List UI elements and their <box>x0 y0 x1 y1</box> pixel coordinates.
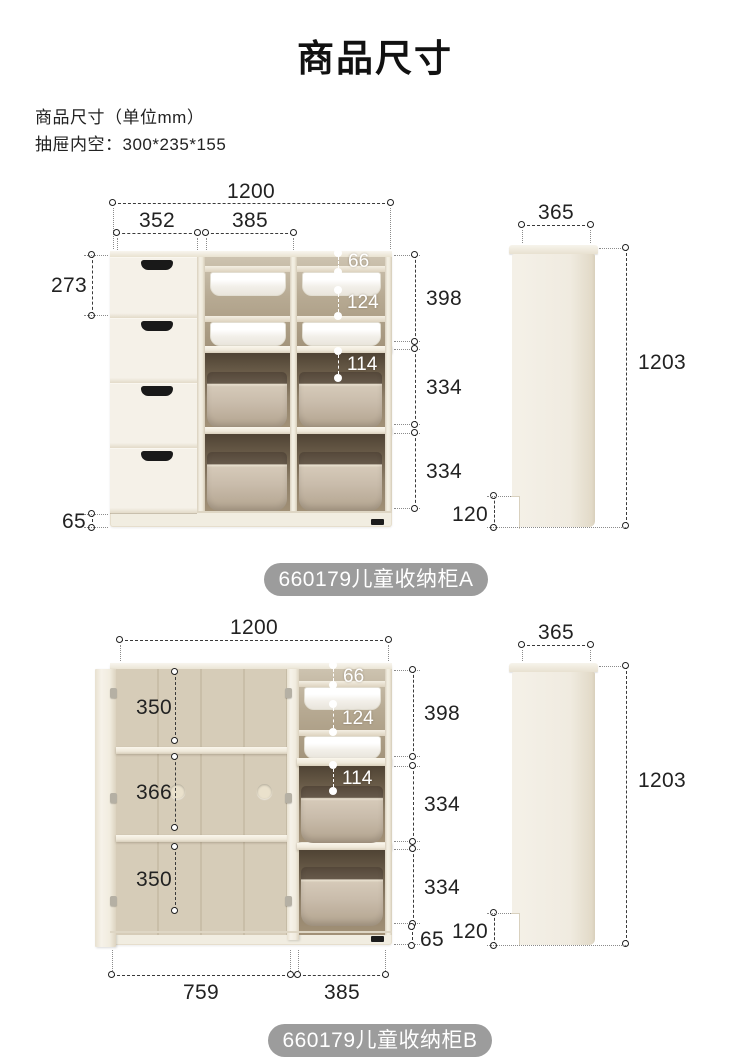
dim-line-b-total-width <box>120 640 388 641</box>
divider-panel <box>290 257 297 513</box>
door-hinge <box>110 793 117 803</box>
extension-line <box>394 944 420 945</box>
extension-line <box>84 514 108 515</box>
tan-storage-bin <box>301 867 383 926</box>
door-hinge <box>110 896 117 906</box>
dim-line-a-section-middle <box>415 349 416 424</box>
extension-line <box>487 913 511 914</box>
dim-line-b-shelf-top <box>175 672 176 740</box>
extension-line <box>117 238 118 250</box>
dim-a-section-top: 398 <box>426 288 462 309</box>
extension-line <box>84 527 108 528</box>
white-storage-bin <box>304 687 381 710</box>
dim-line-b-height <box>626 666 627 943</box>
plinth-notch <box>511 913 520 946</box>
cabinet-b-side-top-panel <box>509 663 598 672</box>
extension-line <box>197 238 198 250</box>
dim-line-a-side-plinth <box>494 496 495 527</box>
side-wall <box>385 257 392 513</box>
dim-b-section-middle: 334 <box>424 794 460 815</box>
extension-line <box>120 645 121 661</box>
dim-a-shelf-width: 385 <box>232 210 268 231</box>
dim-a-upper-bin: 124 <box>347 293 379 312</box>
dim-b-upper-bin: 124 <box>342 709 374 728</box>
anti-tip-mark <box>371 519 384 525</box>
tan-storage-bin <box>207 452 287 511</box>
shelf <box>116 835 287 842</box>
dim-line-a-drawer-height <box>92 255 93 315</box>
dim-line-b-depth <box>522 645 590 646</box>
plinth-notch <box>511 496 520 529</box>
door-hinge <box>285 793 292 803</box>
dim-b-shelf-middle: 366 <box>136 782 172 803</box>
dim-a-top-gap: 66 <box>348 252 369 271</box>
cable-hole <box>170 784 185 799</box>
tan-storage-bin <box>301 786 383 843</box>
dimension-unit-note: 商品尺寸（单位mm） <box>35 103 204 128</box>
dim-a-section-bottom: 334 <box>426 461 462 482</box>
dim-a-total-width: 1200 <box>227 181 275 202</box>
dim-b-side-plinth: 120 <box>452 921 488 942</box>
extension-line <box>487 527 626 528</box>
dim-b-total-width: 1200 <box>230 617 278 638</box>
white-storage-bin <box>210 272 286 296</box>
dim-a-drawer-height: 273 <box>51 275 87 296</box>
side-wall <box>385 669 392 935</box>
drawer-handle <box>141 451 173 461</box>
dim-b-section-bottom: 334 <box>424 877 460 898</box>
dim-b-left-width: 759 <box>183 982 219 1003</box>
extension-line <box>112 950 113 971</box>
dim-line-a-depth <box>522 225 590 226</box>
extension-line <box>394 849 420 850</box>
dim-line-a-drawer-width <box>117 233 197 234</box>
white-storage-bin <box>210 322 286 346</box>
door-hinge <box>110 688 117 698</box>
extension-line <box>590 650 591 661</box>
extension-line <box>394 766 420 767</box>
dim-b-section-top: 398 <box>424 703 460 724</box>
white-storage-bin <box>304 736 381 759</box>
dim-line-b-section-top <box>413 670 414 756</box>
extension-line <box>388 645 389 661</box>
shelf <box>297 758 392 766</box>
cabinet-b-side-view <box>512 672 595 945</box>
dim-b-shelf-top: 350 <box>136 697 172 718</box>
drawer-inner-size-note: 抽屉内空：300*235*155 <box>35 130 226 155</box>
extension-line <box>487 945 626 946</box>
dim-line-b-right-width <box>298 975 385 976</box>
drawer-handle <box>141 260 173 270</box>
extension-line <box>394 923 420 924</box>
white-storage-bin <box>302 322 381 346</box>
dim-line-a-section-bottom <box>415 433 416 508</box>
dim-line-a-total-width <box>113 203 390 204</box>
page-title: 商品尺寸 <box>0 28 750 82</box>
dim-line-a-upper-bin <box>338 294 339 312</box>
dim-b-top-gap: 66 <box>343 667 364 686</box>
tan-storage-bin <box>299 452 382 511</box>
dim-line-b-section-bottom <box>413 849 414 923</box>
dim-line-a-plinth <box>92 514 93 527</box>
dim-line-b-side-plinth <box>494 913 495 945</box>
plinth-edge <box>110 931 392 933</box>
dim-line-b-upper-bin <box>333 708 334 728</box>
dim-a-height: 1203 <box>638 352 686 373</box>
door-hinge <box>285 896 292 906</box>
dim-a-side-plinth: 120 <box>452 504 488 525</box>
shelf <box>297 843 392 850</box>
dim-b-height: 1203 <box>638 770 686 791</box>
extension-line <box>84 255 108 256</box>
extension-line <box>394 670 420 671</box>
extension-line <box>487 496 511 497</box>
dim-line-b-shelf-middle <box>175 757 176 827</box>
dim-b-right-width: 385 <box>324 982 360 1003</box>
dim-line-b-middle-gap <box>333 769 334 787</box>
tan-storage-bin <box>207 372 287 428</box>
drawer-handle <box>141 321 173 331</box>
dim-line-a-shelf-width <box>206 233 293 234</box>
dim-a-drawer-width: 352 <box>139 210 175 231</box>
door-hinge <box>285 688 292 698</box>
dim-a-depth: 365 <box>538 202 574 223</box>
dim-b-depth: 365 <box>538 622 574 643</box>
cabinet-a-side-view <box>512 254 595 527</box>
extension-line <box>84 315 108 316</box>
extension-line <box>290 950 291 971</box>
cable-hole <box>257 784 272 799</box>
extension-line <box>522 230 523 243</box>
extension-line <box>394 841 420 842</box>
dim-line-b-left-width <box>112 975 290 976</box>
cabinet-a-side-top-panel <box>509 245 598 254</box>
extension-line <box>599 666 621 667</box>
extension-line <box>385 950 386 971</box>
divider-panel <box>197 257 205 513</box>
dim-b-plinth: 65 <box>420 929 444 950</box>
dim-line-b-top-gap <box>333 669 334 681</box>
shelf <box>116 747 287 754</box>
model-label-b: 660179儿童收纳柜B <box>268 1024 492 1057</box>
dim-line-b-shelf-bottom <box>175 847 176 910</box>
dim-line-a-section-top <box>415 255 416 341</box>
anti-tip-mark <box>371 936 384 942</box>
dim-b-middle-gap: 114 <box>342 769 372 788</box>
dim-a-plinth: 65 <box>62 511 86 532</box>
product-dimensions-page: 商品尺寸 商品尺寸（单位mm） 抽屉内空：300*235*155 1200 35… <box>0 0 750 1062</box>
extension-line <box>522 650 523 661</box>
dim-line-b-section-middle <box>413 766 414 841</box>
dim-b-shelf-bottom: 350 <box>136 869 172 890</box>
model-label-a: 660179儿童收纳柜A <box>264 563 488 596</box>
extension-line <box>394 756 420 757</box>
dim-line-b-plinth <box>412 927 413 945</box>
dim-a-middle-gap: 114 <box>347 355 377 374</box>
extension-line <box>390 208 391 249</box>
dim-a-section-middle: 334 <box>426 377 462 398</box>
extension-line <box>590 230 591 243</box>
dim-line-a-middle-gap <box>338 355 339 374</box>
extension-line <box>599 248 621 249</box>
extension-line <box>206 238 207 250</box>
dim-line-a-height <box>626 248 627 525</box>
dim-line-a-top-gap <box>338 257 339 268</box>
drawer-handle <box>141 386 173 396</box>
extension-line <box>298 950 299 971</box>
extension-line <box>293 238 294 250</box>
